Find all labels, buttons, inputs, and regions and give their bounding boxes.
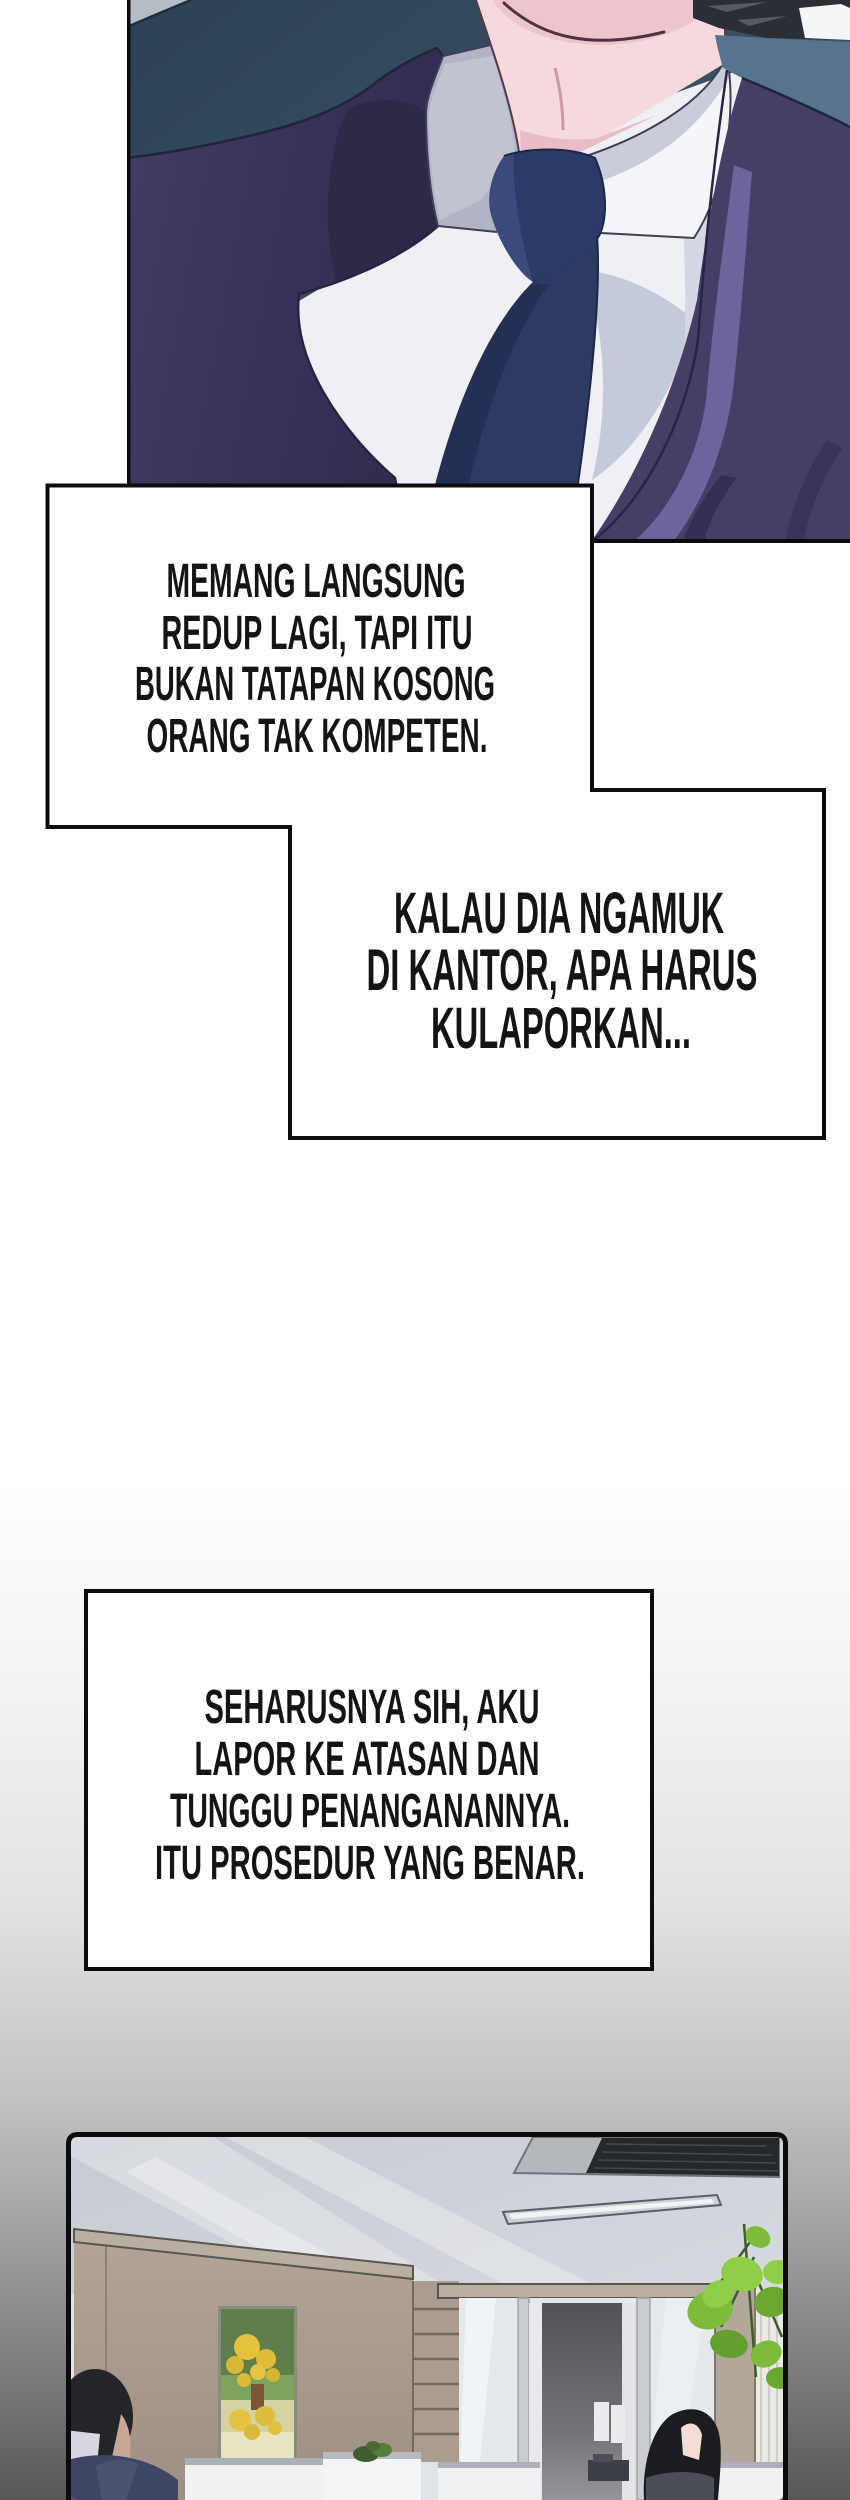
svg-text:DI KANTOR, APA HARUS: DI KANTOR, APA HARUS [367,938,758,1003]
svg-text:ORANG TAK KOMPETEN.: ORANG TAK KOMPETEN. [147,710,488,763]
svg-text:SEHARUSNYA SIH, AKU: SEHARUSNYA SIH, AKU [205,1681,540,1734]
svg-text:REDUP LAGI, TAPI ITU: REDUP LAGI, TAPI ITU [162,607,473,660]
svg-text:TUNGGU PENANGANANNYA.: TUNGGU PENANGANANNYA. [170,1785,570,1838]
svg-text:ITU PROSEDUR YANG BENAR.: ITU PROSEDUR YANG BENAR. [155,1837,585,1890]
svg-text:MEMANG LANGSUNG: MEMANG LANGSUNG [167,555,466,608]
svg-text:LAPOR KE ATASAN DAN: LAPOR KE ATASAN DAN [195,1733,540,1786]
svg-text:KALAU DIA NGAMUK: KALAU DIA NGAMUK [394,881,724,946]
svg-text:KULAPORKAN...: KULAPORKAN... [431,996,691,1061]
svg-text:BUKAN TATAPAN KOSONG: BUKAN TATAPAN KOSONG [135,658,495,711]
